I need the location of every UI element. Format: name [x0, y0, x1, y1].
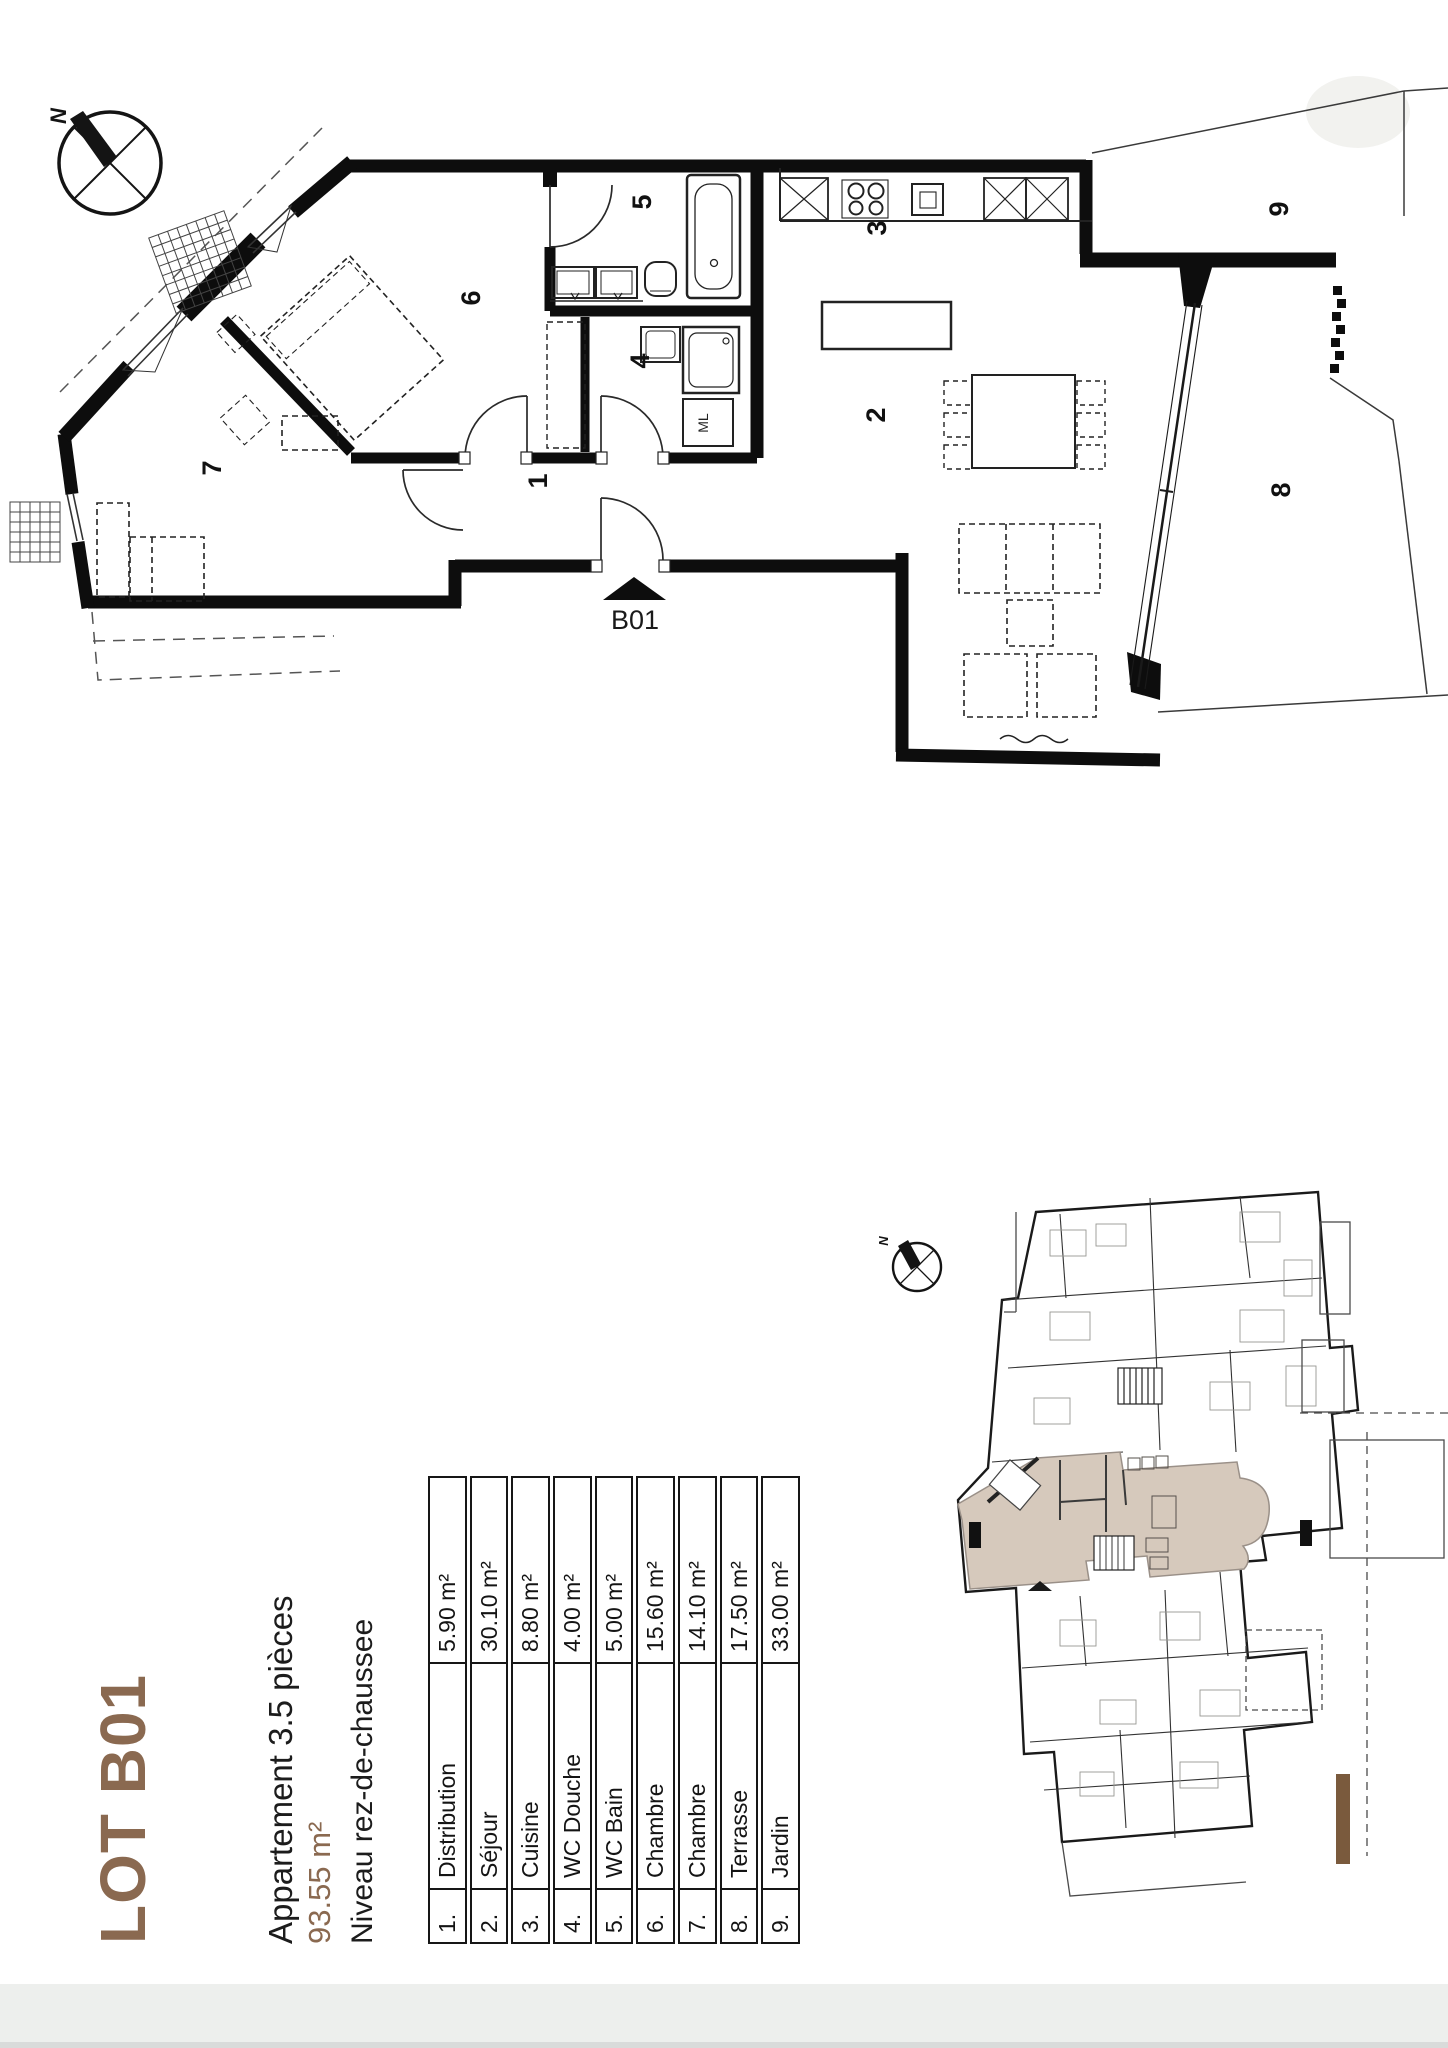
bottom-edge-strip — [0, 2042, 1448, 2048]
row-number: 2. — [472, 1890, 507, 1942]
lot-title: LOT B01 — [86, 1674, 160, 1944]
row-area: 4.00 m² — [555, 1478, 590, 1664]
row-area: 8.80 m² — [513, 1478, 548, 1664]
garden-boundaries — [1092, 88, 1448, 712]
site-tree-marker — [969, 1522, 981, 1548]
svg-text:8: 8 — [1266, 482, 1296, 497]
row-name: Séjour — [472, 1664, 507, 1890]
site-plan: N — [876, 1192, 1448, 1896]
compass-needle-icon — [70, 111, 117, 167]
row-name: Chambre — [638, 1664, 673, 1890]
floorplan-sheet: N — [0, 0, 1448, 2048]
compass-north-label: N — [46, 107, 71, 124]
row-name: WC Bain — [597, 1664, 632, 1890]
svg-text:7: 7 — [197, 460, 227, 475]
row-number: 7. — [680, 1890, 715, 1942]
row-area: 15.60 m² — [638, 1478, 673, 1664]
living-furniture — [822, 302, 1105, 743]
site-compass-rose — [893, 1240, 941, 1291]
apartment-type: Appartement 3.5 pièces — [262, 1595, 300, 1944]
row-number: 6. — [638, 1890, 673, 1942]
svg-text:5: 5 — [627, 194, 657, 209]
row-area: 30.10 m² — [472, 1478, 507, 1664]
table-row: 8. Terrasse 17.50 m² — [720, 1476, 759, 1944]
row-number: 3. — [513, 1890, 548, 1942]
row-area: 33.00 m² — [763, 1478, 798, 1664]
svg-text:1: 1 — [523, 473, 553, 488]
windows — [67, 206, 296, 541]
table-row: 1. Distribution 5.90 m² — [428, 1476, 467, 1944]
row-name: WC Douche — [555, 1664, 590, 1890]
scan-artifact — [1306, 76, 1410, 148]
row-name: Cuisine — [513, 1664, 548, 1890]
site-compass-north-label: N — [876, 1236, 891, 1246]
row-name: Chambre — [680, 1664, 715, 1890]
planter-hatch — [10, 211, 251, 562]
row-number: 4. — [555, 1890, 590, 1942]
row-area: 17.50 m² — [722, 1478, 757, 1664]
row-number: 9. — [763, 1890, 798, 1942]
row-number: 8. — [722, 1890, 757, 1942]
kitchen-counter — [780, 168, 1092, 221]
entrance-arrow-icon — [603, 577, 666, 600]
row-area: 5.00 m² — [597, 1478, 632, 1664]
title-block: LOT B01 Appartement 3.5 pièces 93.55 m² … — [96, 1580, 396, 1952]
svg-text:9: 9 — [1264, 201, 1294, 216]
row-area: 5.90 m² — [430, 1478, 465, 1664]
terrace-glazing — [1127, 254, 1216, 700]
svg-text:2: 2 — [861, 407, 891, 422]
table-row: 2. Séjour 30.10 m² — [470, 1476, 509, 1944]
row-name: Distribution — [430, 1664, 465, 1890]
bedroom7-furniture — [97, 416, 338, 601]
level-label: Niveau rez-de-chaussee — [346, 1619, 380, 1944]
hedge-dashes — [1330, 286, 1346, 373]
table-row: 4. WC Douche 4.00 m² — [553, 1476, 592, 1944]
bottom-gray-strip — [0, 1984, 1448, 2048]
row-area: 14.10 m² — [680, 1478, 715, 1664]
svg-text:6: 6 — [456, 290, 486, 305]
table-row: 3. Cuisine 8.80 m² — [511, 1476, 550, 1944]
svg-text:4: 4 — [625, 353, 655, 368]
washer-label: ML — [695, 413, 711, 433]
entrance-label: B01 — [611, 605, 659, 635]
site-stair-upper — [1118, 1368, 1162, 1404]
door-swings — [403, 185, 663, 560]
room-legend-table: 1. Distribution 5.90 m² 2. Séjour 30.10 … — [428, 1476, 800, 1944]
row-number: 1. — [430, 1890, 465, 1942]
row-name: Jardin — [763, 1664, 798, 1890]
svg-text:3: 3 — [862, 220, 892, 235]
room-number-labels: 1 2 3 4 5 6 7 8 9 — [197, 194, 1296, 497]
table-row: 5. WC Bain 5.00 m² — [595, 1476, 634, 1944]
table-row: 6. Chambre 15.60 m² — [636, 1476, 675, 1944]
door-jambs — [459, 452, 670, 572]
table-row: 7. Chambre 14.10 m² — [678, 1476, 717, 1944]
compass-rose — [59, 111, 161, 214]
row-name: Terrasse — [722, 1664, 757, 1890]
table-row: 9. Jardin 33.00 m² — [761, 1476, 800, 1944]
bath-fixtures — [550, 175, 740, 301]
site-tree-marker — [1300, 1520, 1312, 1546]
total-area: 93.55 m² — [302, 1822, 338, 1944]
row-number: 5. — [597, 1890, 632, 1942]
scale-bar — [1336, 1774, 1350, 1864]
